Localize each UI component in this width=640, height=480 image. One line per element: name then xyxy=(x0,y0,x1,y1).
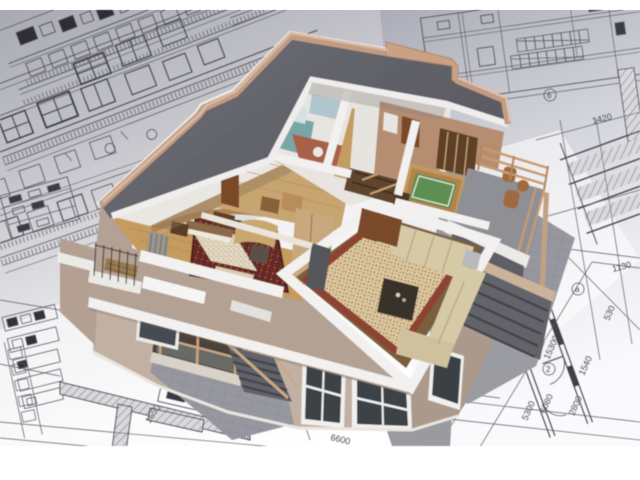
svg-text:a: a xyxy=(575,285,580,294)
svg-text:6: 6 xyxy=(547,91,552,100)
svg-text:2: 2 xyxy=(546,365,551,374)
